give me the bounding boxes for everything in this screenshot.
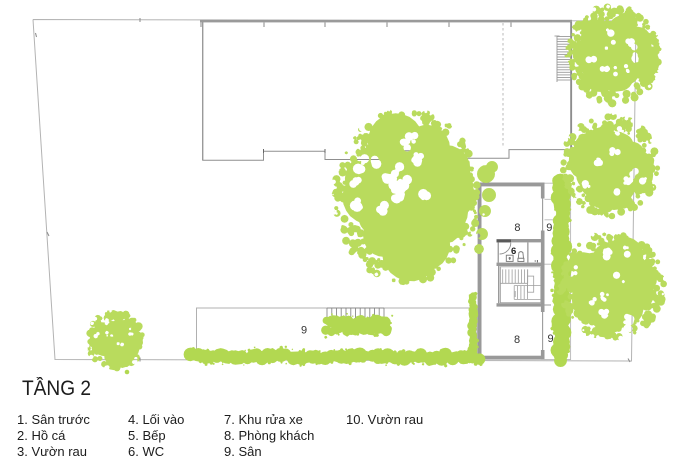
svg-text:8: 8 — [514, 222, 520, 234]
svg-text:6: 6 — [511, 246, 516, 257]
svg-text:8: 8 — [514, 334, 520, 346]
svg-text:9: 9 — [546, 222, 552, 234]
svg-text:9: 9 — [301, 325, 307, 337]
svg-text:9: 9 — [547, 333, 553, 345]
